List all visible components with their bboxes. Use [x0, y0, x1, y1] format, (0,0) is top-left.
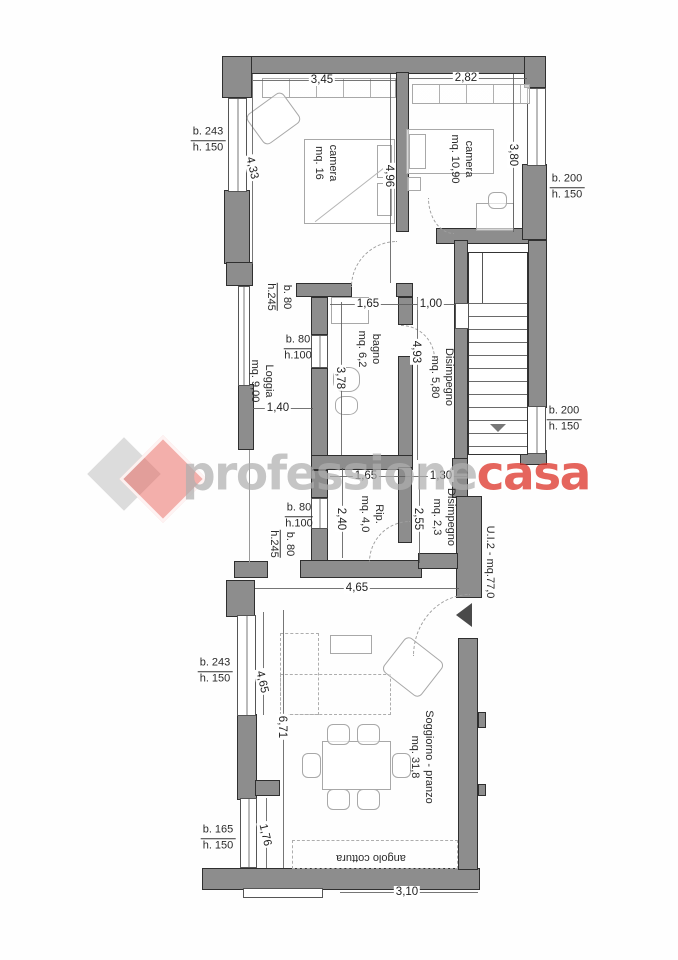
room-label-angolo-cottura: angolo cottura	[336, 850, 406, 864]
opening-b: b. 243	[198, 656, 233, 672]
wall-bagno-top-a	[296, 283, 352, 297]
watermark-diamond-gray-icon	[87, 437, 161, 511]
window-pane-line	[246, 616, 247, 715]
wall-left-camera1	[224, 190, 250, 264]
window-pane-line	[319, 499, 320, 528]
desk-chair	[488, 192, 507, 209]
room-label-camera1: camera mq. 16	[311, 145, 339, 182]
window-camera1	[228, 98, 247, 192]
room-name: Loggia	[261, 364, 275, 397]
window-stairwell	[527, 406, 546, 454]
room-name: Disimpegno	[441, 348, 455, 406]
dim-label: 1,30	[428, 470, 454, 482]
room-label-loggia: Loggia mq. 9,00	[247, 360, 275, 403]
opening-label-tr: b. 200 h. 150	[550, 172, 585, 202]
room-area: mq. 31,8	[407, 736, 421, 779]
opening-h: h. 150	[200, 672, 231, 686]
wall-pilaster-2	[478, 784, 486, 796]
wall-rip-left-lower	[311, 528, 328, 564]
opening-label-tl: b. 243 h. 150	[191, 125, 226, 155]
dining-chair	[357, 789, 380, 810]
window-kitchen	[240, 798, 257, 868]
dim-label: 3,45	[309, 74, 335, 86]
dining-table	[322, 741, 391, 790]
loggia-edge-line	[249, 450, 250, 563]
dim-label: 3,78	[334, 365, 346, 391]
dimension-line	[263, 612, 264, 715]
dim-label: 2,55	[412, 506, 424, 532]
sofa-horizontal	[280, 674, 391, 715]
railing-line	[244, 287, 245, 385]
opening-label-soggiorno: b. 243 h. 150	[198, 656, 233, 686]
pillow	[409, 134, 426, 169]
room-area: mq. 4,0	[357, 496, 371, 533]
room-area: mq. 2,3	[429, 499, 443, 536]
dim-label: 2,40	[335, 506, 347, 532]
floorplan-page: 3,45 2,82 4,33 4,96 3,80 1,65 1,00 4,93 …	[0, 0, 678, 960]
opening-label-kitchen: b. 165 h. 150	[201, 823, 236, 853]
room-label-camera2: camera mq. 10,90	[447, 135, 475, 184]
dining-chair	[302, 753, 321, 778]
opening-b: b. 200	[550, 172, 585, 188]
door-swing-arc-camera2	[428, 198, 454, 234]
room-label-soggiorno: Soggiorno - pranzo mq. 31,8	[407, 710, 435, 804]
opening-b: b. 80	[285, 501, 313, 517]
room-area: mq. 5,80	[427, 356, 441, 399]
opening-b: b. 80	[280, 530, 296, 558]
door-swing-arc-entrance	[413, 594, 470, 656]
opening-b: b. 243	[191, 125, 226, 141]
room-name: Rip.	[371, 504, 385, 524]
nightstand	[407, 177, 421, 191]
wall-rip-left-upper	[311, 470, 328, 498]
dim-label: 1,00	[418, 298, 444, 310]
dim-label: 4,93	[410, 339, 422, 365]
opening-h: h.245	[263, 283, 277, 311]
opening-label-bagno: b. 80 h.100	[284, 333, 312, 363]
dining-chair	[327, 724, 350, 745]
wall-soggiorno-right	[458, 638, 478, 870]
wall-stairwell-left	[454, 240, 468, 462]
stairs-landing	[468, 252, 528, 304]
opening-h: h.100	[285, 517, 313, 531]
wall-entry-right-jog	[456, 496, 482, 598]
opening-h: h.100	[284, 349, 312, 363]
dim-label: 6,71	[276, 714, 288, 740]
dim-label: 3,80	[507, 142, 519, 168]
room-name: Soggiorno - pranzo	[421, 710, 435, 804]
wall-loggia-top-pillar	[226, 262, 253, 286]
bidet	[335, 396, 358, 415]
wall-soggiorno-top	[300, 560, 422, 578]
stairs-step	[455, 303, 469, 329]
room-name: camera	[325, 145, 339, 182]
opening-h: h. 150	[549, 420, 580, 434]
room-label-disimpegno2: Disimpegno mq. 2,3	[429, 488, 457, 546]
wall-stairwell-right	[528, 240, 547, 408]
room-name: angolo cottura	[336, 850, 406, 864]
opening-label-left-mid: b. 80 h.245	[266, 530, 296, 558]
wall-right-camera2	[522, 164, 547, 240]
wall-soggiorno-topleft-b	[226, 580, 255, 617]
room-label-disimpegno1: Disimpegno mq. 5,80	[427, 348, 455, 406]
opening-b: b. 200	[547, 404, 582, 420]
window-pane-line	[319, 336, 320, 367]
opening-b: b. 80	[284, 333, 312, 349]
room-label-rip: Rip. mq. 4,0	[357, 496, 385, 533]
wall-bagno-top-b	[396, 283, 413, 297]
wall-top-left-corner	[222, 56, 252, 98]
opening-h: h. 150	[193, 141, 224, 155]
dim-label: 1,40	[265, 402, 291, 414]
window-pane-line	[237, 99, 238, 191]
room-label-bagno: bagno mq. 6,2	[354, 331, 382, 368]
opening-h: h. 150	[203, 839, 234, 853]
opening-h: h. 150	[552, 188, 583, 202]
dining-chair	[357, 724, 380, 745]
wall-bagno-right-lower	[398, 356, 413, 460]
room-area: mq. 6,2	[354, 331, 368, 368]
window-pane-line	[248, 799, 249, 867]
wall-bagno-left-lower	[311, 368, 328, 460]
window-soggiorno	[237, 615, 256, 716]
wall-soggiorno-left-mid	[237, 714, 257, 800]
window-pane-line	[536, 89, 537, 165]
room-name: Disimpegno	[443, 488, 457, 546]
dim-label: 4,96	[383, 163, 395, 189]
opening-b: b. 165	[201, 823, 236, 839]
dim-label: 3,10	[394, 886, 420, 898]
unit-label: U.I.2 - mq.77,0	[482, 526, 496, 599]
opening-label-rip: b. 80 h.100	[285, 501, 313, 531]
dining-chair	[327, 789, 350, 810]
window-pane-line	[536, 407, 537, 453]
unit-label-text: U.I.2 - mq.77,0	[482, 526, 496, 599]
armchair-camera1	[244, 90, 302, 146]
room-area: mq. 16	[311, 146, 325, 180]
wall-soggiorno-topleft-a	[234, 561, 268, 578]
wall-entry-top	[418, 553, 458, 569]
window-rip	[311, 498, 328, 529]
dim-label: 4,65	[344, 582, 370, 594]
room-name: camera	[461, 141, 475, 178]
threshold-step	[243, 888, 323, 898]
wall-bagno-right-upper	[398, 297, 413, 325]
opening-label-loggia-top: b. 80 h.245	[263, 283, 293, 311]
dim-label: 2,82	[453, 72, 479, 84]
wall-top-exterior	[222, 56, 546, 74]
opening-h: h.245	[266, 530, 280, 558]
opening-b: b. 80	[277, 283, 293, 311]
dimension-line	[417, 297, 418, 460]
opening-label-stairs: b. 200 h. 150	[547, 404, 582, 434]
window-bagno	[311, 335, 328, 368]
wall-bagno-left-upper	[311, 297, 328, 335]
dim-label: 1,65	[353, 470, 379, 482]
room-area: mq. 9,00	[247, 360, 261, 403]
stairs-treads	[468, 303, 528, 455]
wall-bottom-exterior	[202, 868, 480, 890]
wall-window-stub	[255, 780, 280, 796]
room-name: bagno	[368, 334, 382, 365]
dim-label: 1,65	[355, 298, 381, 310]
dim-label: 1,76	[256, 821, 274, 849]
coffee-table	[330, 635, 372, 654]
room-area: mq. 10,90	[447, 135, 461, 184]
wall-pilaster-1	[478, 712, 486, 728]
watermark-diamond-red-icon	[119, 435, 207, 523]
